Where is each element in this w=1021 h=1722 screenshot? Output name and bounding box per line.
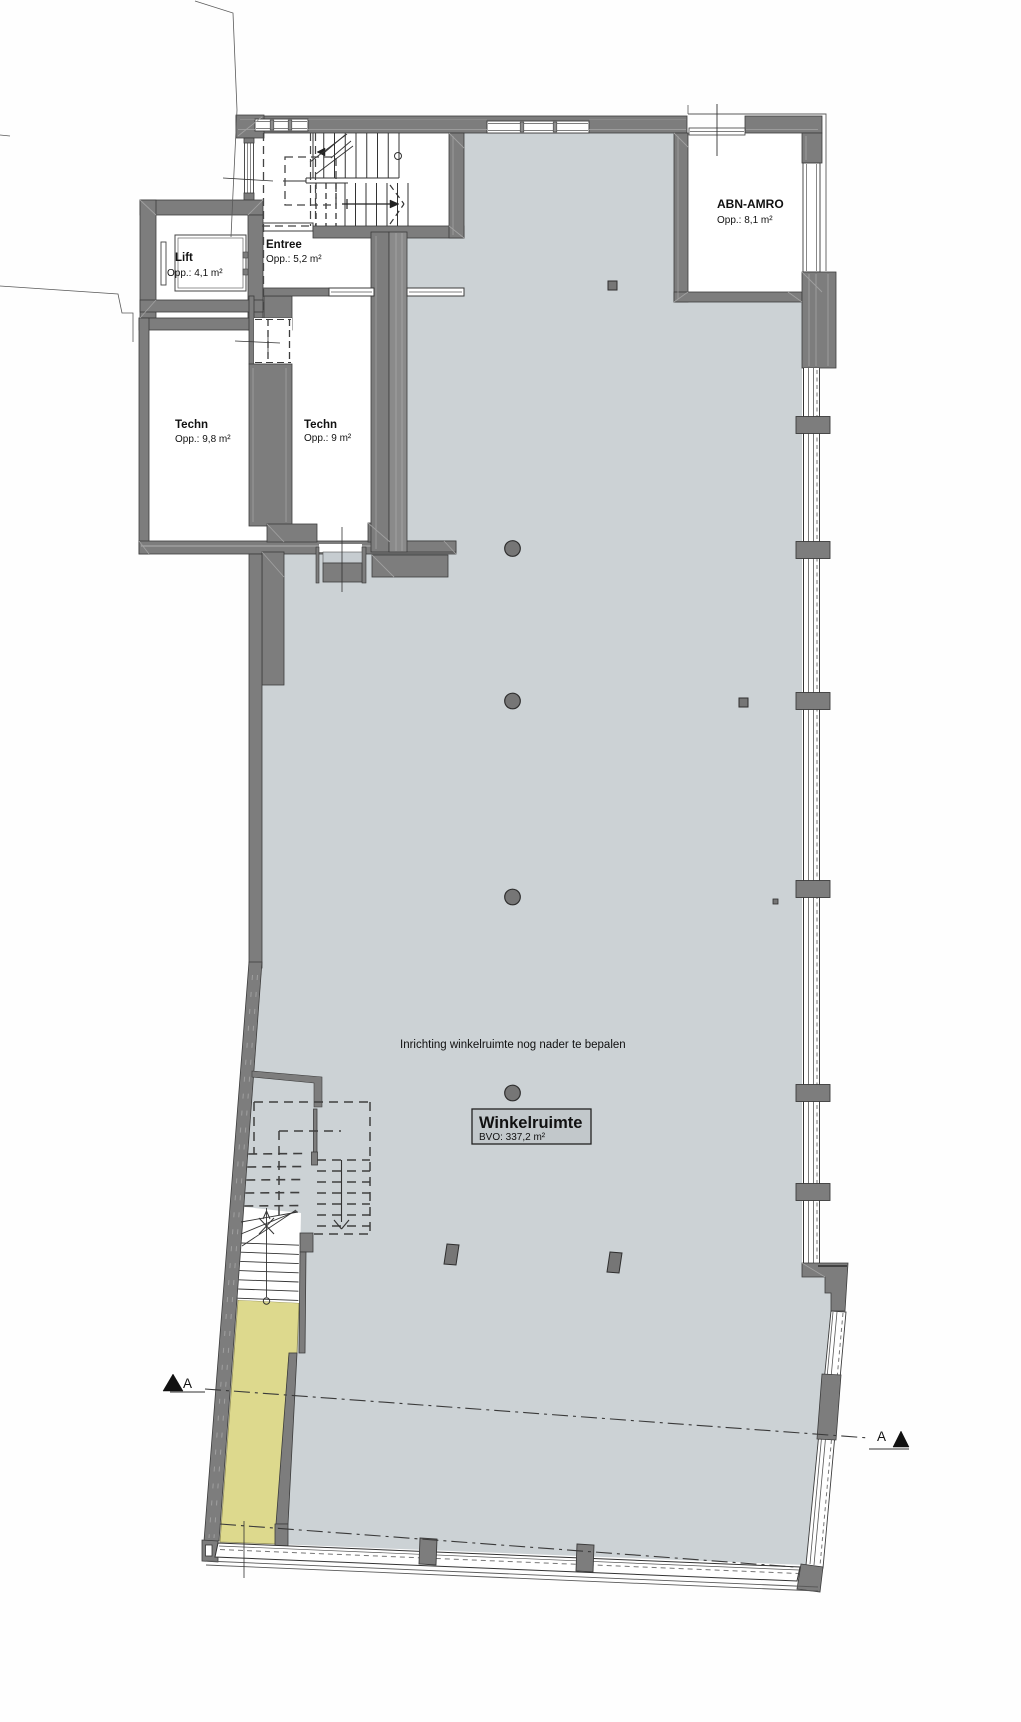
svg-text:Opp.: 8,1 m²: Opp.: 8,1 m² — [717, 215, 773, 226]
svg-text:Opp.: 9 m²: Opp.: 9 m² — [304, 433, 352, 444]
svg-text:Opp.: 9,8 m²: Opp.: 9,8 m² — [175, 434, 231, 445]
svg-text:Winkelruimte: Winkelruimte — [479, 1114, 582, 1132]
svg-text:A: A — [877, 1429, 886, 1444]
svg-text:A: A — [183, 1376, 192, 1391]
svg-text:Opp.: 4,1 m²: Opp.: 4,1 m² — [167, 268, 223, 279]
svg-text:Techn: Techn — [175, 419, 208, 431]
svg-text:BVO: 337,2 m²: BVO: 337,2 m² — [479, 1132, 546, 1143]
svg-text:Techn: Techn — [304, 419, 337, 431]
svg-text:Opp.: 5,2 m²: Opp.: 5,2 m² — [266, 254, 322, 265]
svg-text:ABN-AMRO: ABN-AMRO — [717, 197, 784, 211]
svg-text:Lift: Lift — [175, 252, 193, 264]
svg-text:Entree: Entree — [266, 239, 302, 251]
svg-text:Inrichting winkelruimte nog na: Inrichting winkelruimte nog nader te bep… — [400, 1039, 626, 1051]
